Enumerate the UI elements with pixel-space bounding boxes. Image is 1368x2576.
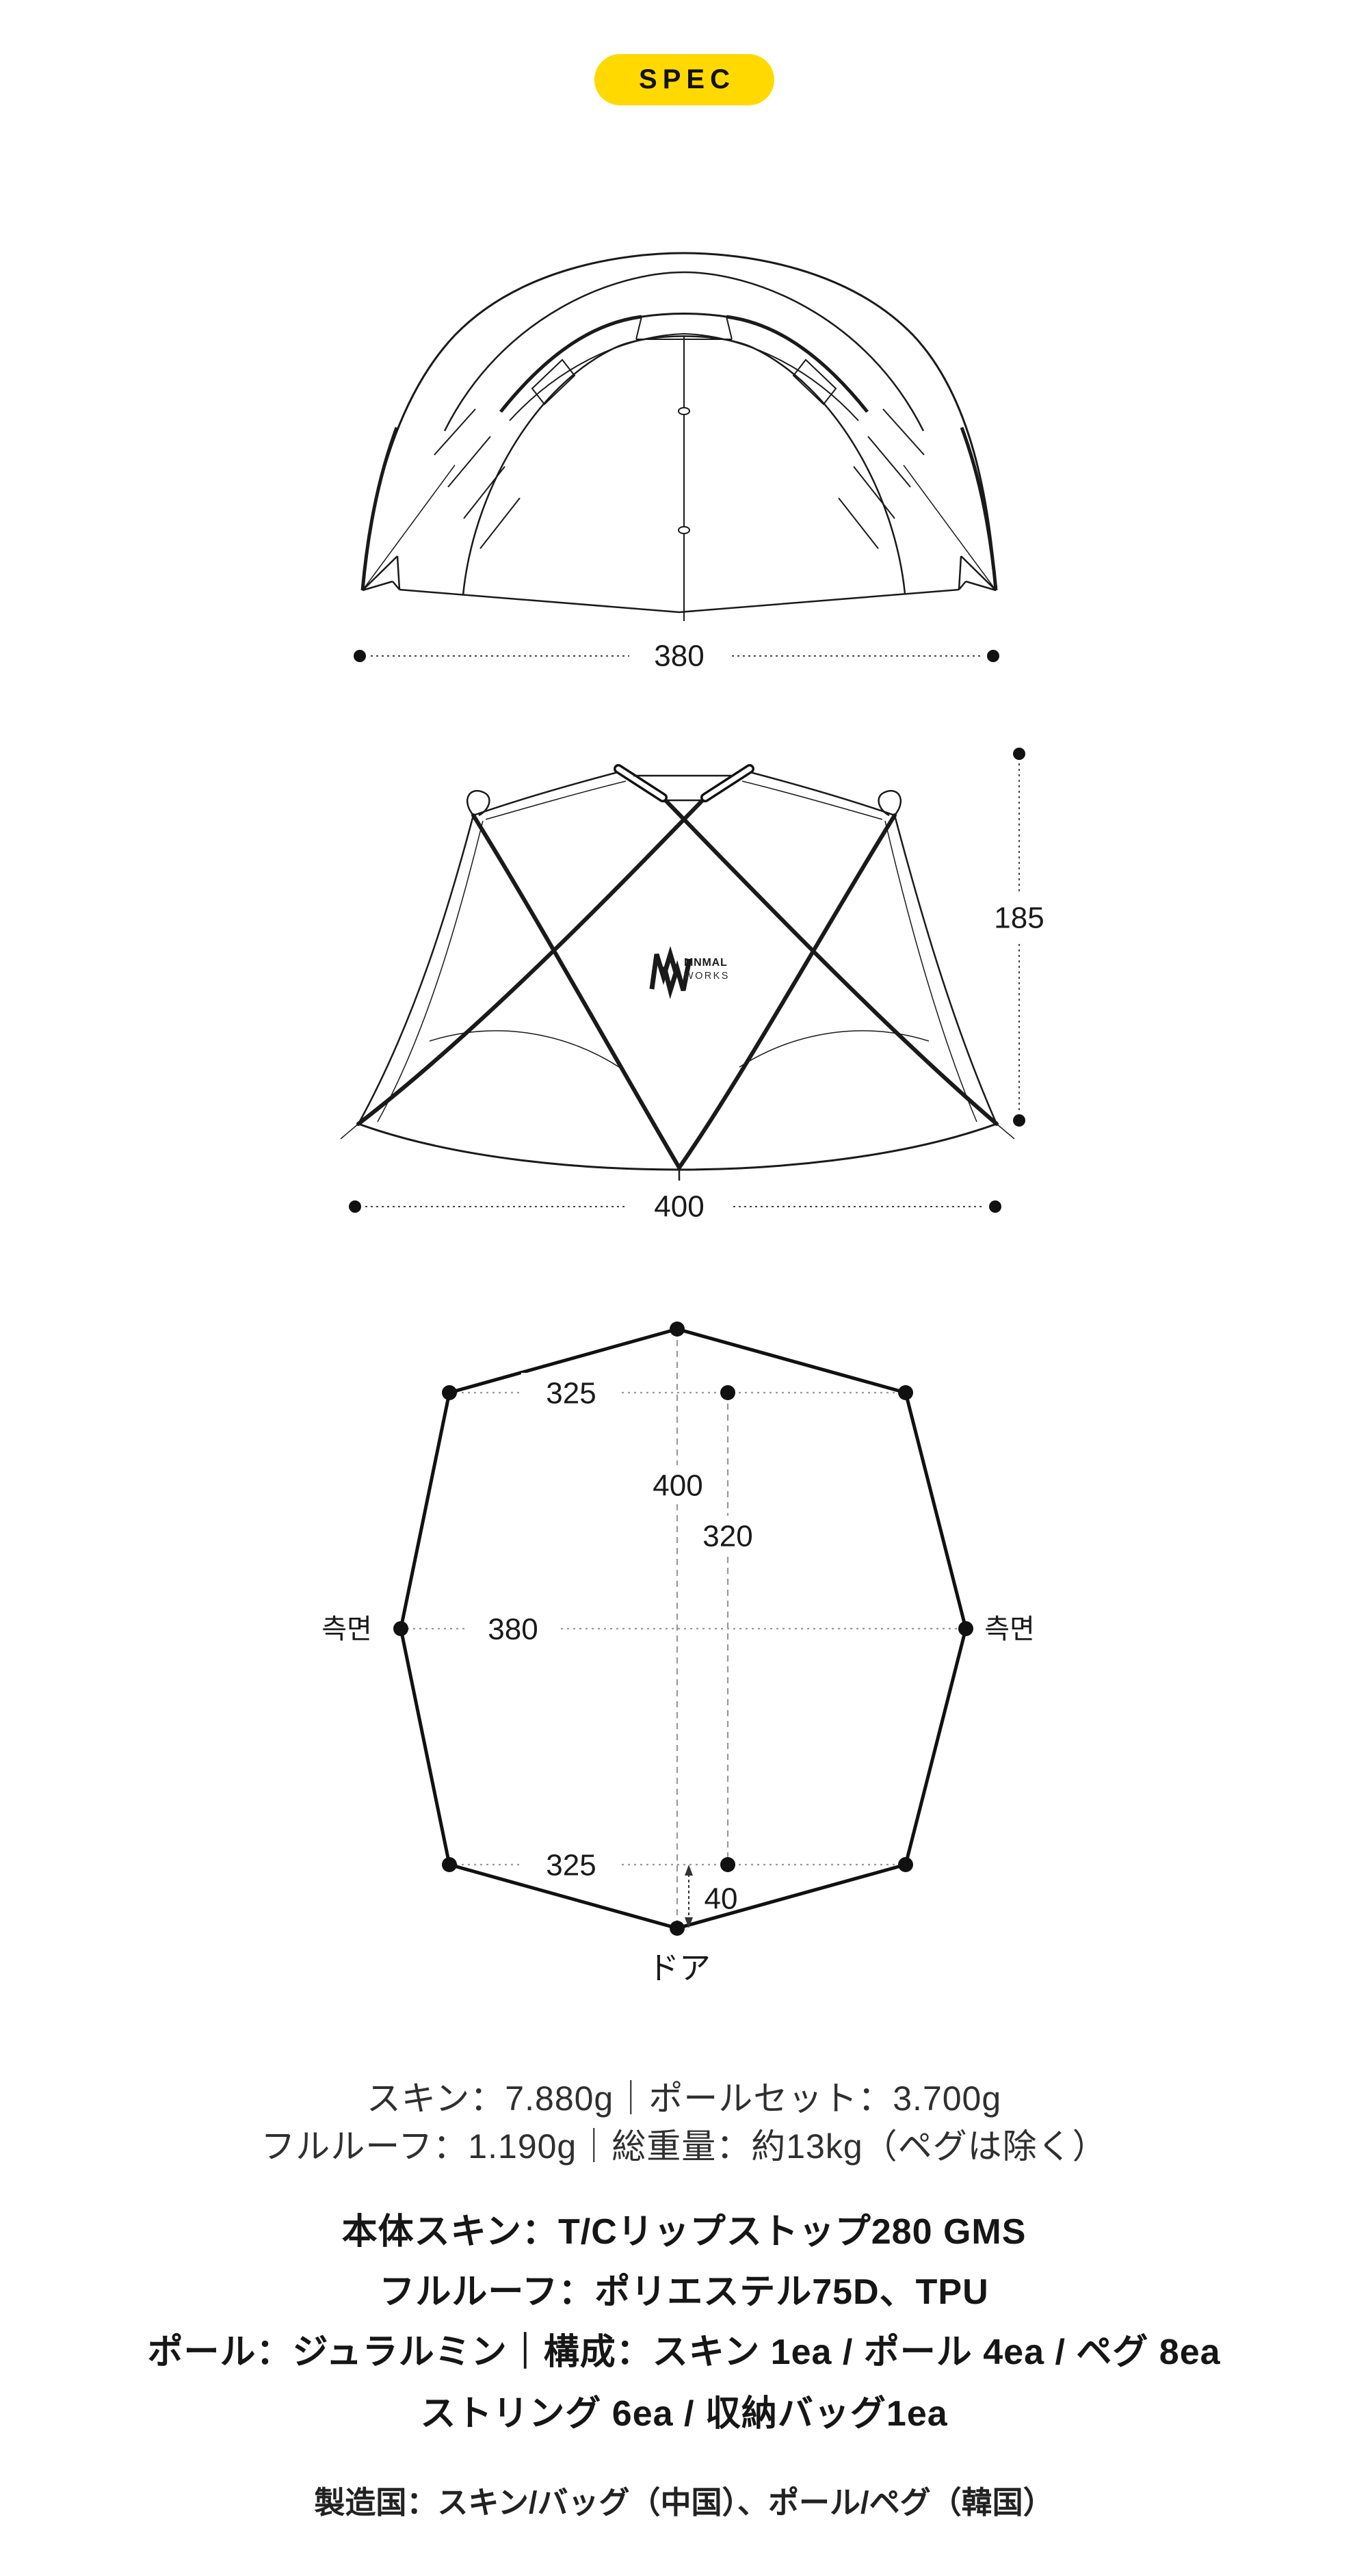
spec-badge-label: SPEC: [633, 64, 735, 95]
origin-spec-line: 製造国：スキン/バッグ（中国）、ポール/ペグ（韓国）: [0, 2478, 1368, 2522]
spec-badge: SPEC: [594, 54, 774, 105]
side-height-label: 185: [994, 902, 1044, 935]
floor-plan-diagram: 325 400 320 380 325 40 측면 측면 ドア: [301, 1300, 1067, 1984]
door-offset-dimension: [685, 1865, 693, 1928]
zipper-pull-icon: [679, 408, 689, 415]
front-width-label: 380: [654, 640, 704, 673]
weight-spec-line-1: スキン：7.880g｜ポールセット：3.700g: [0, 2071, 1368, 2120]
plan-side-label-left: 측면: [321, 1614, 372, 1644]
logo-word-2: WORKS: [684, 971, 730, 982]
plan-door-label: ドア: [648, 1950, 711, 1984]
side-width-label: 400: [654, 1190, 704, 1224]
material-spec-line-1: 本体スキン：T/Cリップストップ280 GMS: [0, 2203, 1368, 2254]
plan-inner-length-label: 320: [702, 1520, 752, 1553]
plan-mid-width-label: 380: [488, 1613, 538, 1646]
tent-side-view-diagram: MNMAL WORKS 185 400: [315, 718, 1053, 1245]
weight-spec-line-2: フルルーフ：1.190g｜総重量：約13kg（ペグは除く）: [0, 2119, 1368, 2168]
zipper-pull-icon: [679, 527, 689, 534]
tent-side-art: MNMAL WORKS: [341, 769, 1014, 1181]
material-spec-line-3: ポール：ジュラルミン｜構成：スキン 1ea / ポール 4ea / ペグ 8ea: [0, 2323, 1368, 2374]
front-width-dimension: 380: [354, 640, 999, 673]
plan-door-offset-label: 40: [705, 1882, 738, 1916]
tent-front-view-diagram: 380: [328, 226, 1040, 677]
logo-word-1: MNMAL: [684, 957, 728, 969]
plan-top-width-label: 325: [546, 1377, 596, 1410]
plan-side-label-right: 측면: [984, 1614, 1035, 1644]
mnml-works-logo: MNMAL WORKS: [652, 954, 730, 990]
side-width-dimension: 400: [349, 1190, 1001, 1224]
material-spec-line-4: ストリング 6ea / 収納バッグ1ea: [0, 2384, 1368, 2436]
plan-length-label: 400: [653, 1469, 702, 1503]
spec-sheet: SPEC: [0, 0, 1368, 2576]
side-height-dimension: 185: [994, 748, 1044, 1127]
material-spec-line-2: フルルーフ：ポリエステル75D、TPU: [0, 2263, 1368, 2314]
plan-bottom-width-label: 325: [546, 1849, 596, 1882]
tent-front-art: [363, 253, 996, 621]
